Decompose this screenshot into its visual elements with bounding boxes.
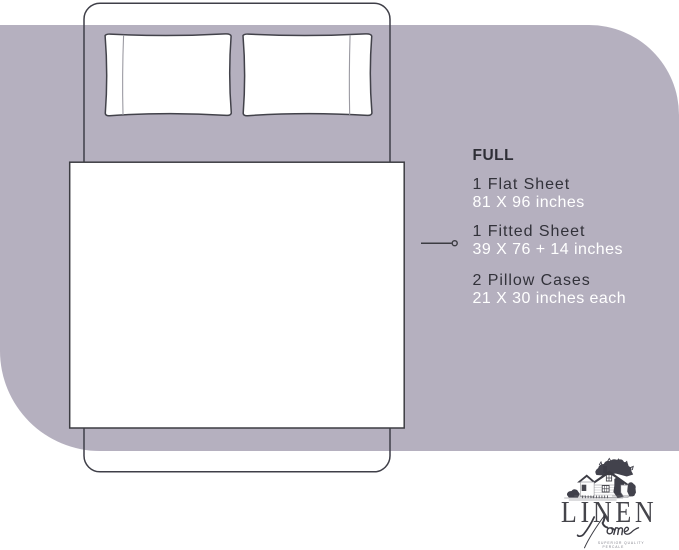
svg-text:PERCALE: PERCALE: [603, 545, 625, 549]
svg-text:LINEN: LINEN: [561, 495, 658, 530]
